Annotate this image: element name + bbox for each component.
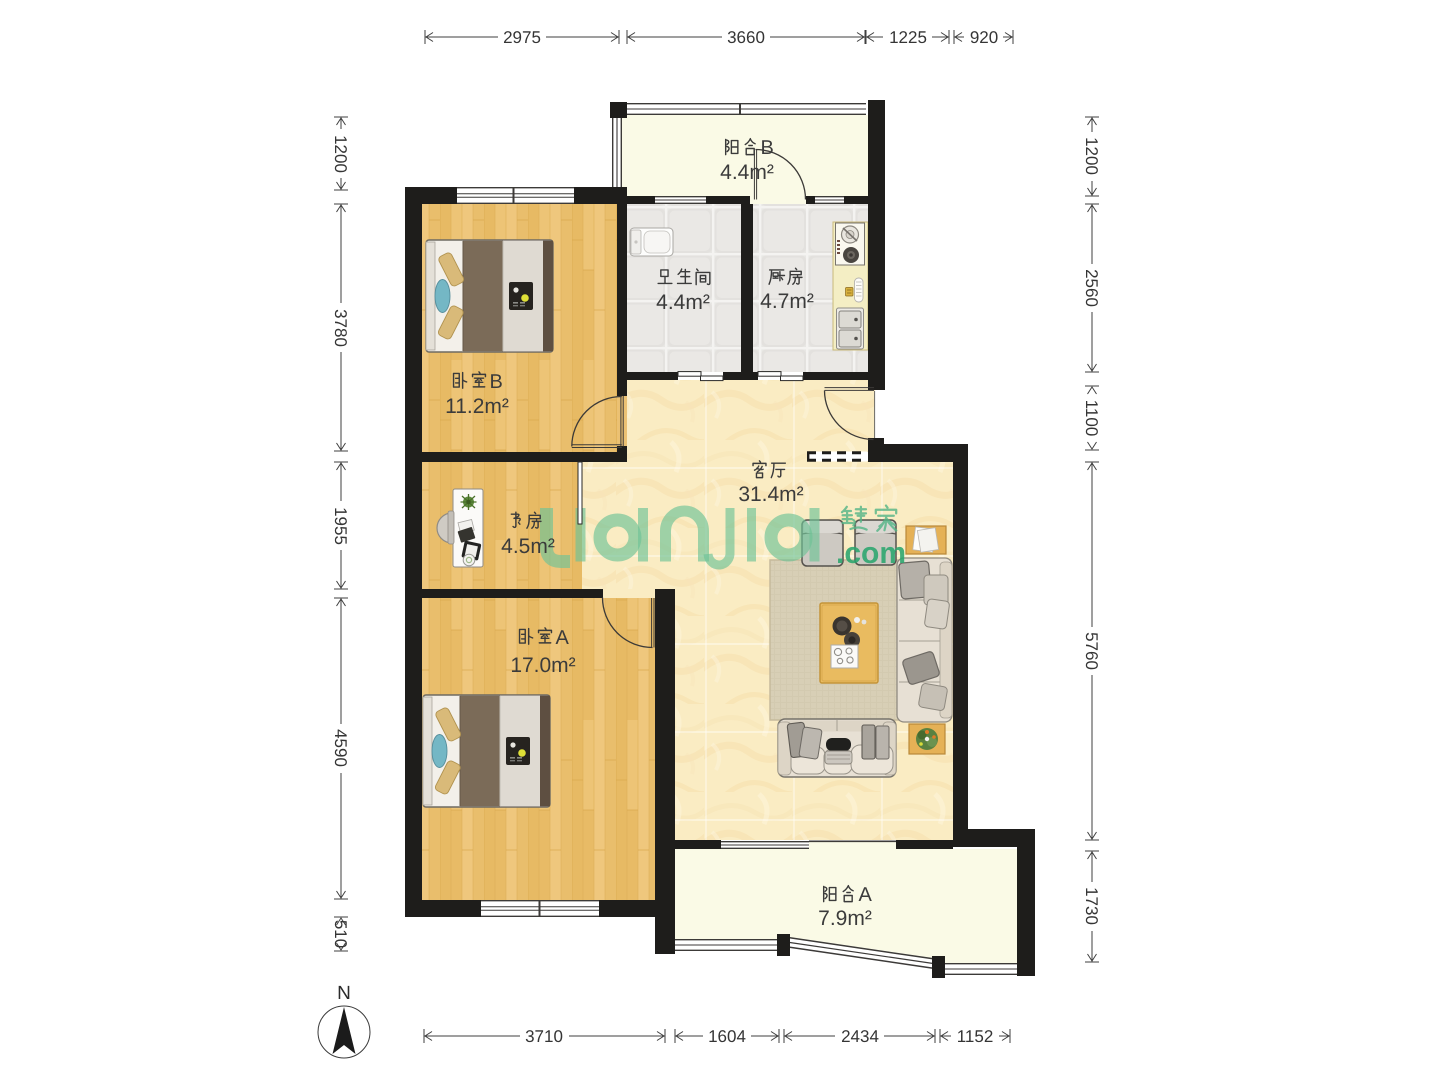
svg-text:7.9m²: 7.9m² [818, 907, 872, 930]
svg-text:A: A [556, 627, 570, 649]
svg-text:4.4m²: 4.4m² [720, 161, 774, 184]
svg-text:4.5m²: 4.5m² [501, 535, 555, 558]
svg-text:4.4m²: 4.4m² [656, 291, 710, 314]
svg-text:1955: 1955 [331, 507, 350, 545]
svg-text:2560: 2560 [1082, 269, 1101, 307]
svg-text:17.0m²: 17.0m² [510, 654, 575, 677]
svg-text:.com: .com [836, 537, 906, 570]
svg-text:1200: 1200 [1082, 137, 1101, 175]
svg-text:1730: 1730 [1082, 887, 1101, 925]
svg-text:2975: 2975 [503, 28, 541, 47]
svg-text:31.4m²: 31.4m² [738, 483, 803, 506]
svg-text:1200: 1200 [331, 135, 350, 173]
svg-text:2434: 2434 [841, 1027, 879, 1046]
svg-text:B: B [761, 137, 774, 159]
svg-text:920: 920 [970, 28, 998, 47]
svg-text:N: N [337, 983, 351, 1004]
svg-text:4590: 4590 [331, 729, 350, 767]
svg-text:3710: 3710 [525, 1027, 563, 1046]
svg-text:1152: 1152 [957, 1027, 994, 1046]
svg-text:1225: 1225 [889, 28, 927, 47]
svg-text:4.7m²: 4.7m² [760, 290, 814, 313]
svg-text:B: B [490, 371, 503, 393]
svg-text:510: 510 [331, 920, 350, 948]
svg-text:1100: 1100 [1082, 400, 1101, 437]
svg-text:11.2m²: 11.2m² [445, 395, 509, 418]
svg-text:5760: 5760 [1082, 632, 1101, 670]
svg-text:1604: 1604 [708, 1027, 746, 1046]
svg-text:3780: 3780 [331, 309, 350, 347]
svg-text:A: A [859, 884, 873, 906]
svg-text:3660: 3660 [727, 28, 765, 47]
